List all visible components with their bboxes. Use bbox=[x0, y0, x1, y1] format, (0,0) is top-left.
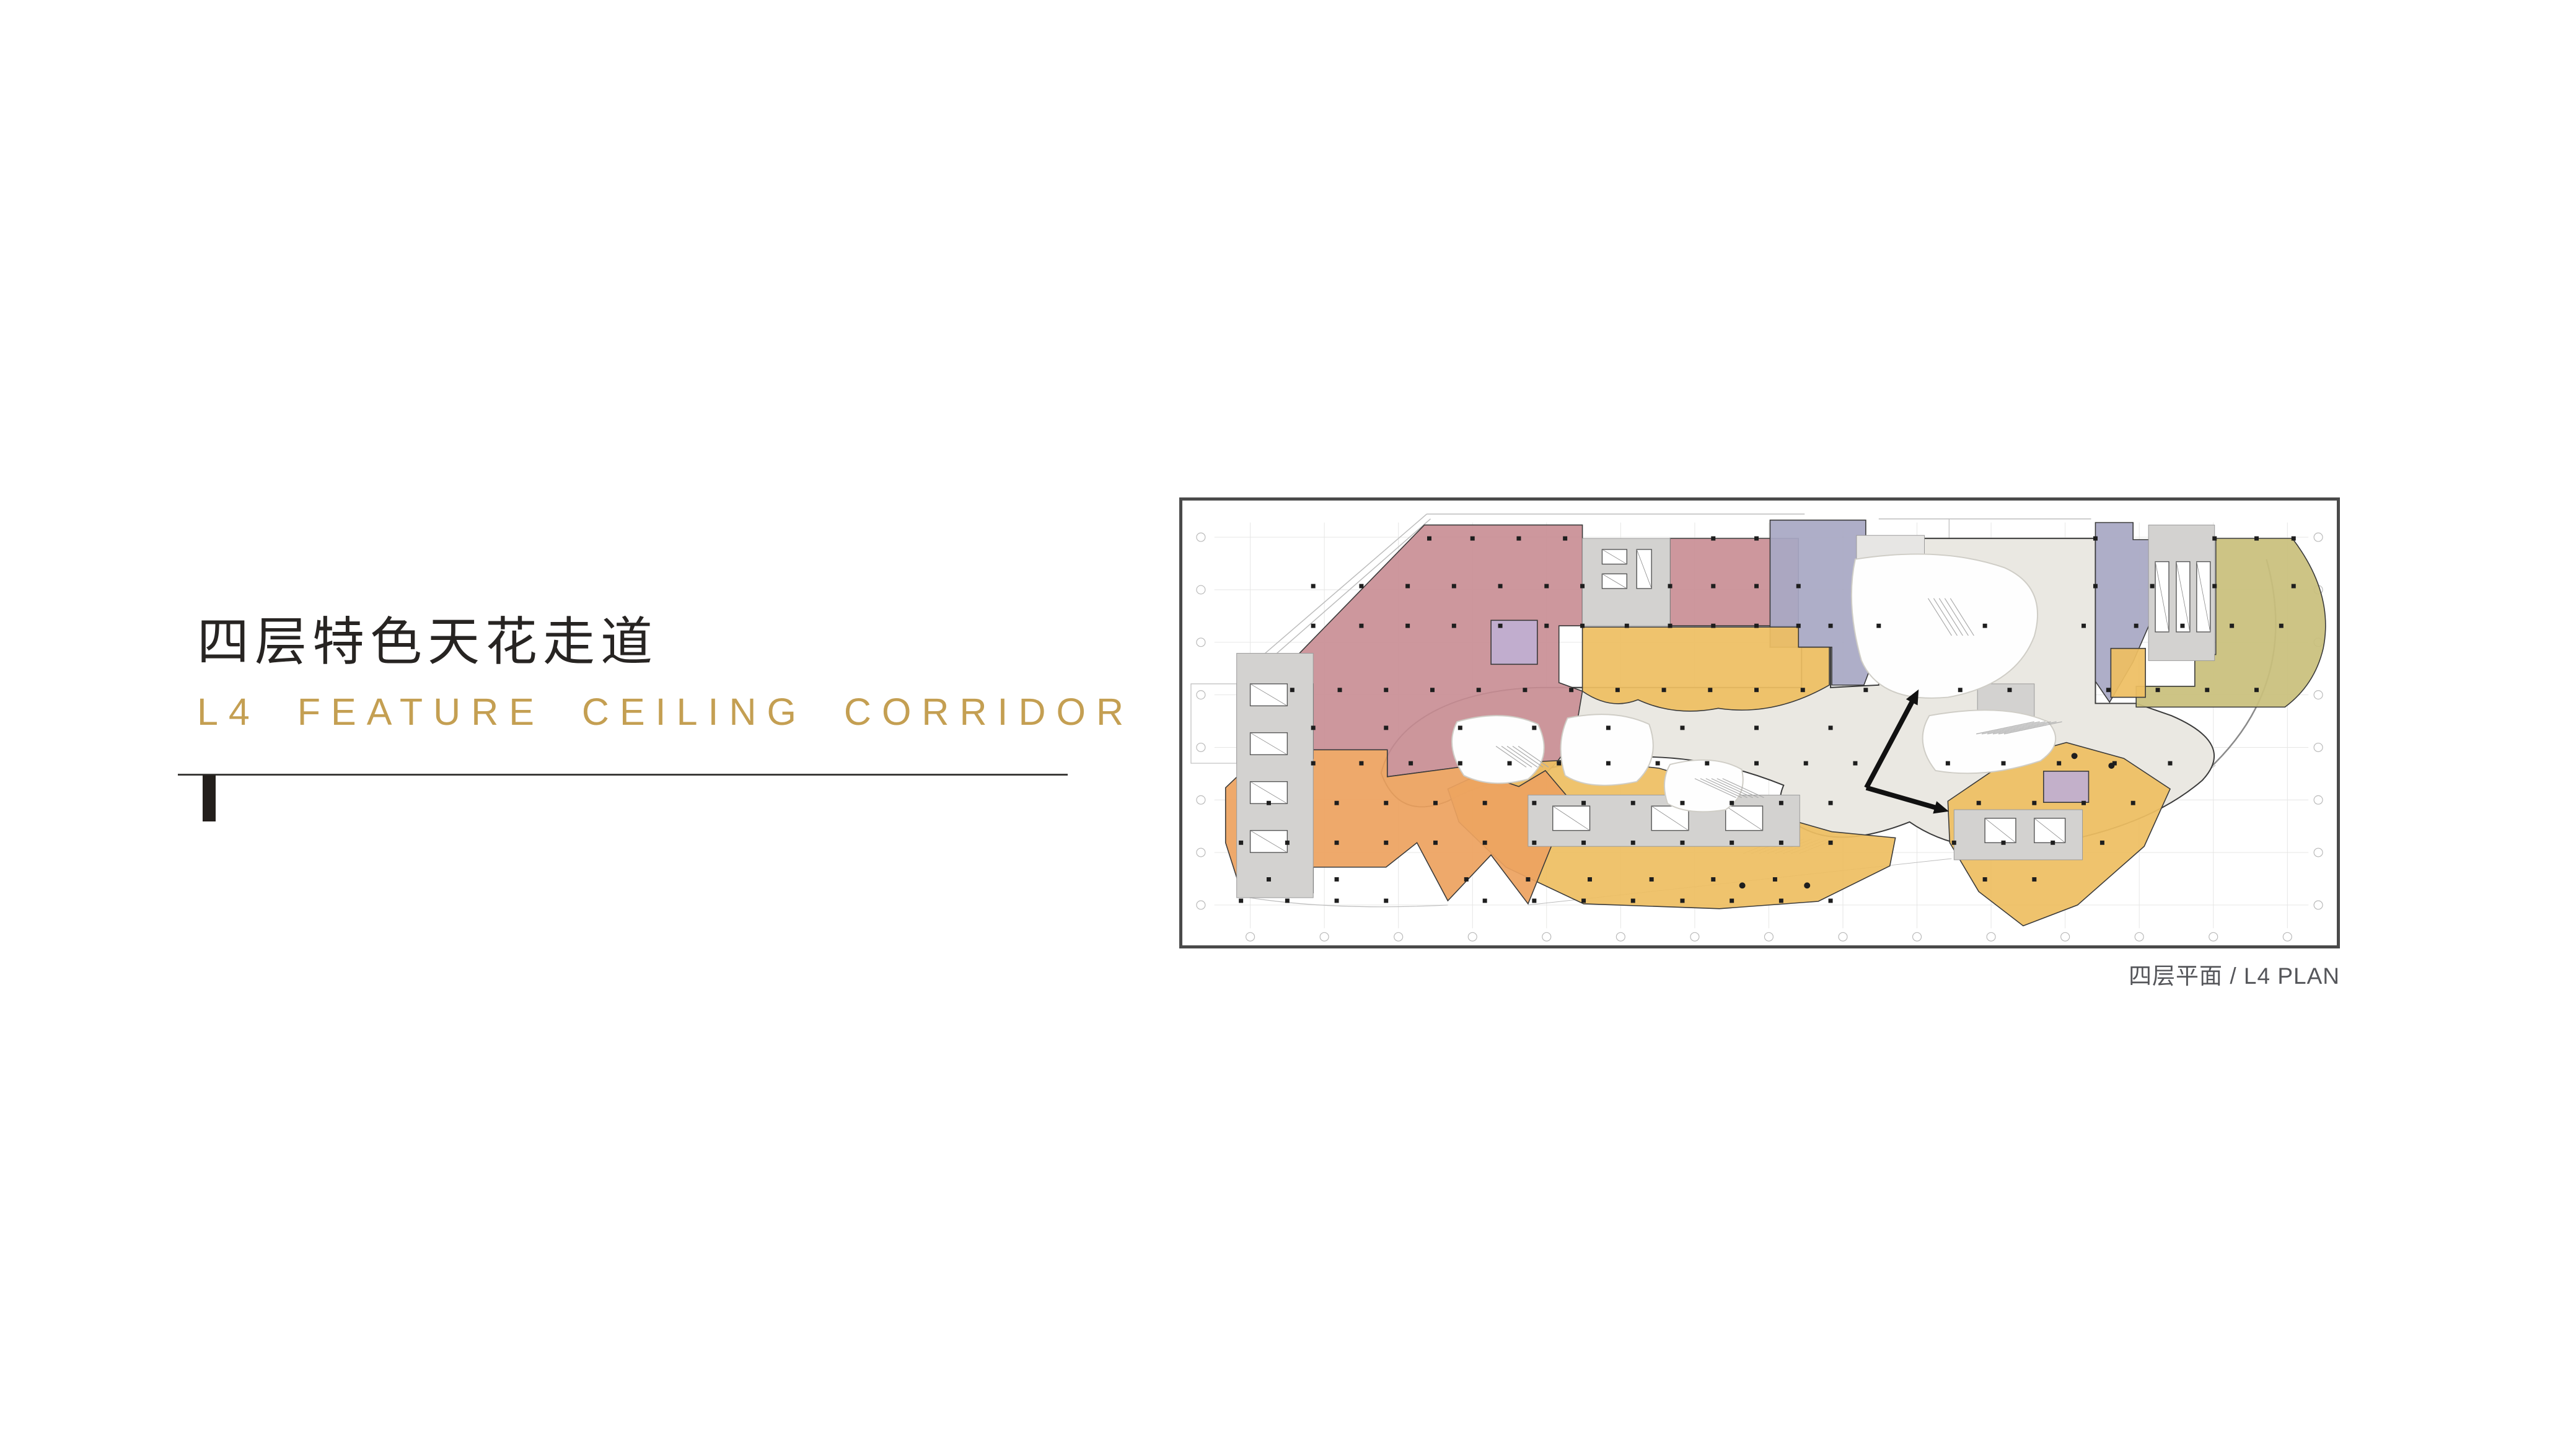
zone-toilet-east bbox=[2044, 771, 2089, 802]
plan-caption: 四层平面 / L4 PLAN bbox=[1179, 957, 2340, 991]
page-subtitle: L4 FEATURE CEILING CORRIDOR bbox=[197, 693, 1134, 731]
floor-plan-frame bbox=[1179, 497, 2340, 948]
page-title: 四层特色天花走道 bbox=[197, 615, 1134, 670]
zone-yellow-north bbox=[1583, 627, 1830, 711]
zone-toilet-west bbox=[1491, 620, 1537, 664]
floor-plan-drawing bbox=[1182, 501, 2337, 945]
title-block: 四层特色天花走道 L4 FEATURE CEILING CORRIDOR bbox=[197, 615, 1134, 731]
title-underline bbox=[178, 774, 1068, 776]
title-accent-bar bbox=[203, 775, 216, 821]
zone-yellow-small bbox=[2111, 649, 2145, 698]
